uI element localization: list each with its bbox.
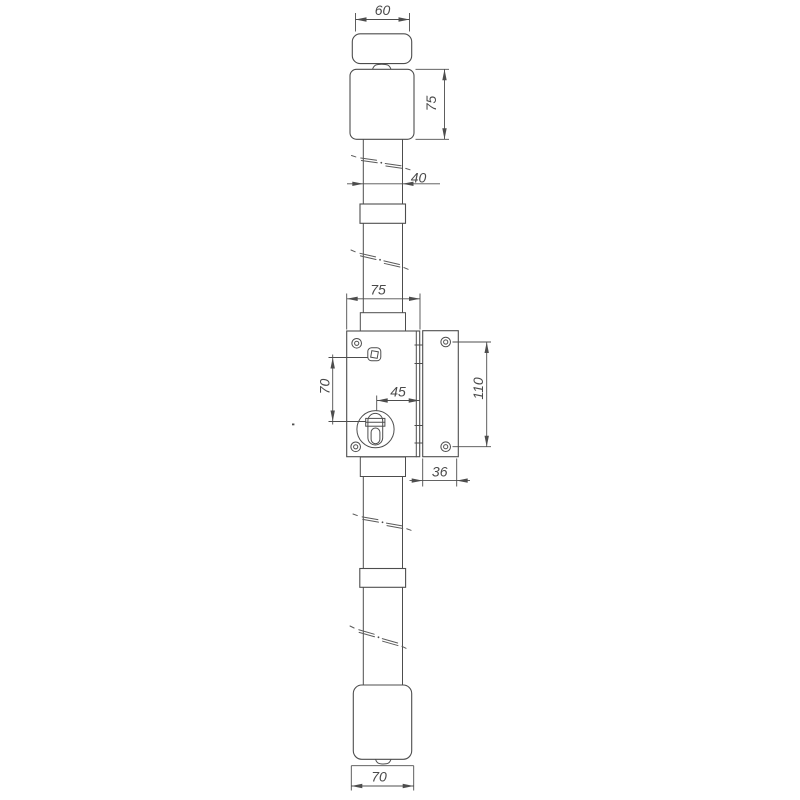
bottom-cap <box>353 685 411 759</box>
arrowhead <box>409 297 420 301</box>
dim-faceplate-width: 36 <box>410 459 471 487</box>
arrowhead <box>457 478 468 482</box>
arrowhead <box>442 69 446 80</box>
arrowhead <box>347 297 358 301</box>
dim-label: 60 <box>375 2 391 18</box>
break-mark-4 <box>348 626 407 648</box>
break-mark-2 <box>350 250 410 269</box>
dim-bottom-cap-width: 70 <box>351 766 413 791</box>
stray-dot-mark <box>292 424 294 426</box>
dim-top-knob-width: 60 <box>356 2 410 32</box>
arrowhead <box>356 17 367 21</box>
dim-label: 40 <box>411 170 427 186</box>
arrowhead <box>351 784 362 788</box>
lower-rod-coupling <box>360 569 406 588</box>
drawing-canvas: 60 75 40 75 70 45 <box>0 0 800 800</box>
arrowhead <box>442 128 446 139</box>
top-housing-bump <box>373 64 392 69</box>
dim-label: 70 <box>371 769 387 785</box>
top-bolt-housing <box>350 69 414 139</box>
upper-rod-sleeve <box>360 313 405 331</box>
upper-rod <box>363 139 402 331</box>
break-mark-3 <box>352 514 412 530</box>
dim-label: 70 <box>316 379 332 395</box>
lower-rod-sleeve <box>360 457 405 477</box>
arrowhead <box>485 342 489 353</box>
faceplate-body <box>423 331 459 457</box>
top-knob <box>352 34 411 64</box>
dim-label: 36 <box>432 464 448 480</box>
arrowhead <box>399 17 410 21</box>
arrowhead <box>403 784 414 788</box>
arrowhead <box>352 182 363 186</box>
dim-label: 110 <box>470 377 486 400</box>
dim-label: 45 <box>390 384 406 400</box>
arrowhead <box>412 478 423 482</box>
arrowhead <box>331 358 335 369</box>
arrowhead <box>331 411 335 422</box>
lock-case <box>347 331 423 457</box>
dim-label: 75 <box>370 282 386 298</box>
bottom-cap-pin <box>376 759 392 764</box>
arrowhead <box>485 436 489 447</box>
dim-rod-diameter: 40 <box>347 170 440 187</box>
upper-rod-coupling <box>360 204 406 223</box>
drawing-page: 60 75 40 75 70 45 <box>0 0 800 800</box>
dim-label: 75 <box>423 96 439 112</box>
break-mark-1 <box>351 156 411 170</box>
dim-top-housing-height: 75 <box>416 69 450 139</box>
faceplate <box>423 331 459 457</box>
